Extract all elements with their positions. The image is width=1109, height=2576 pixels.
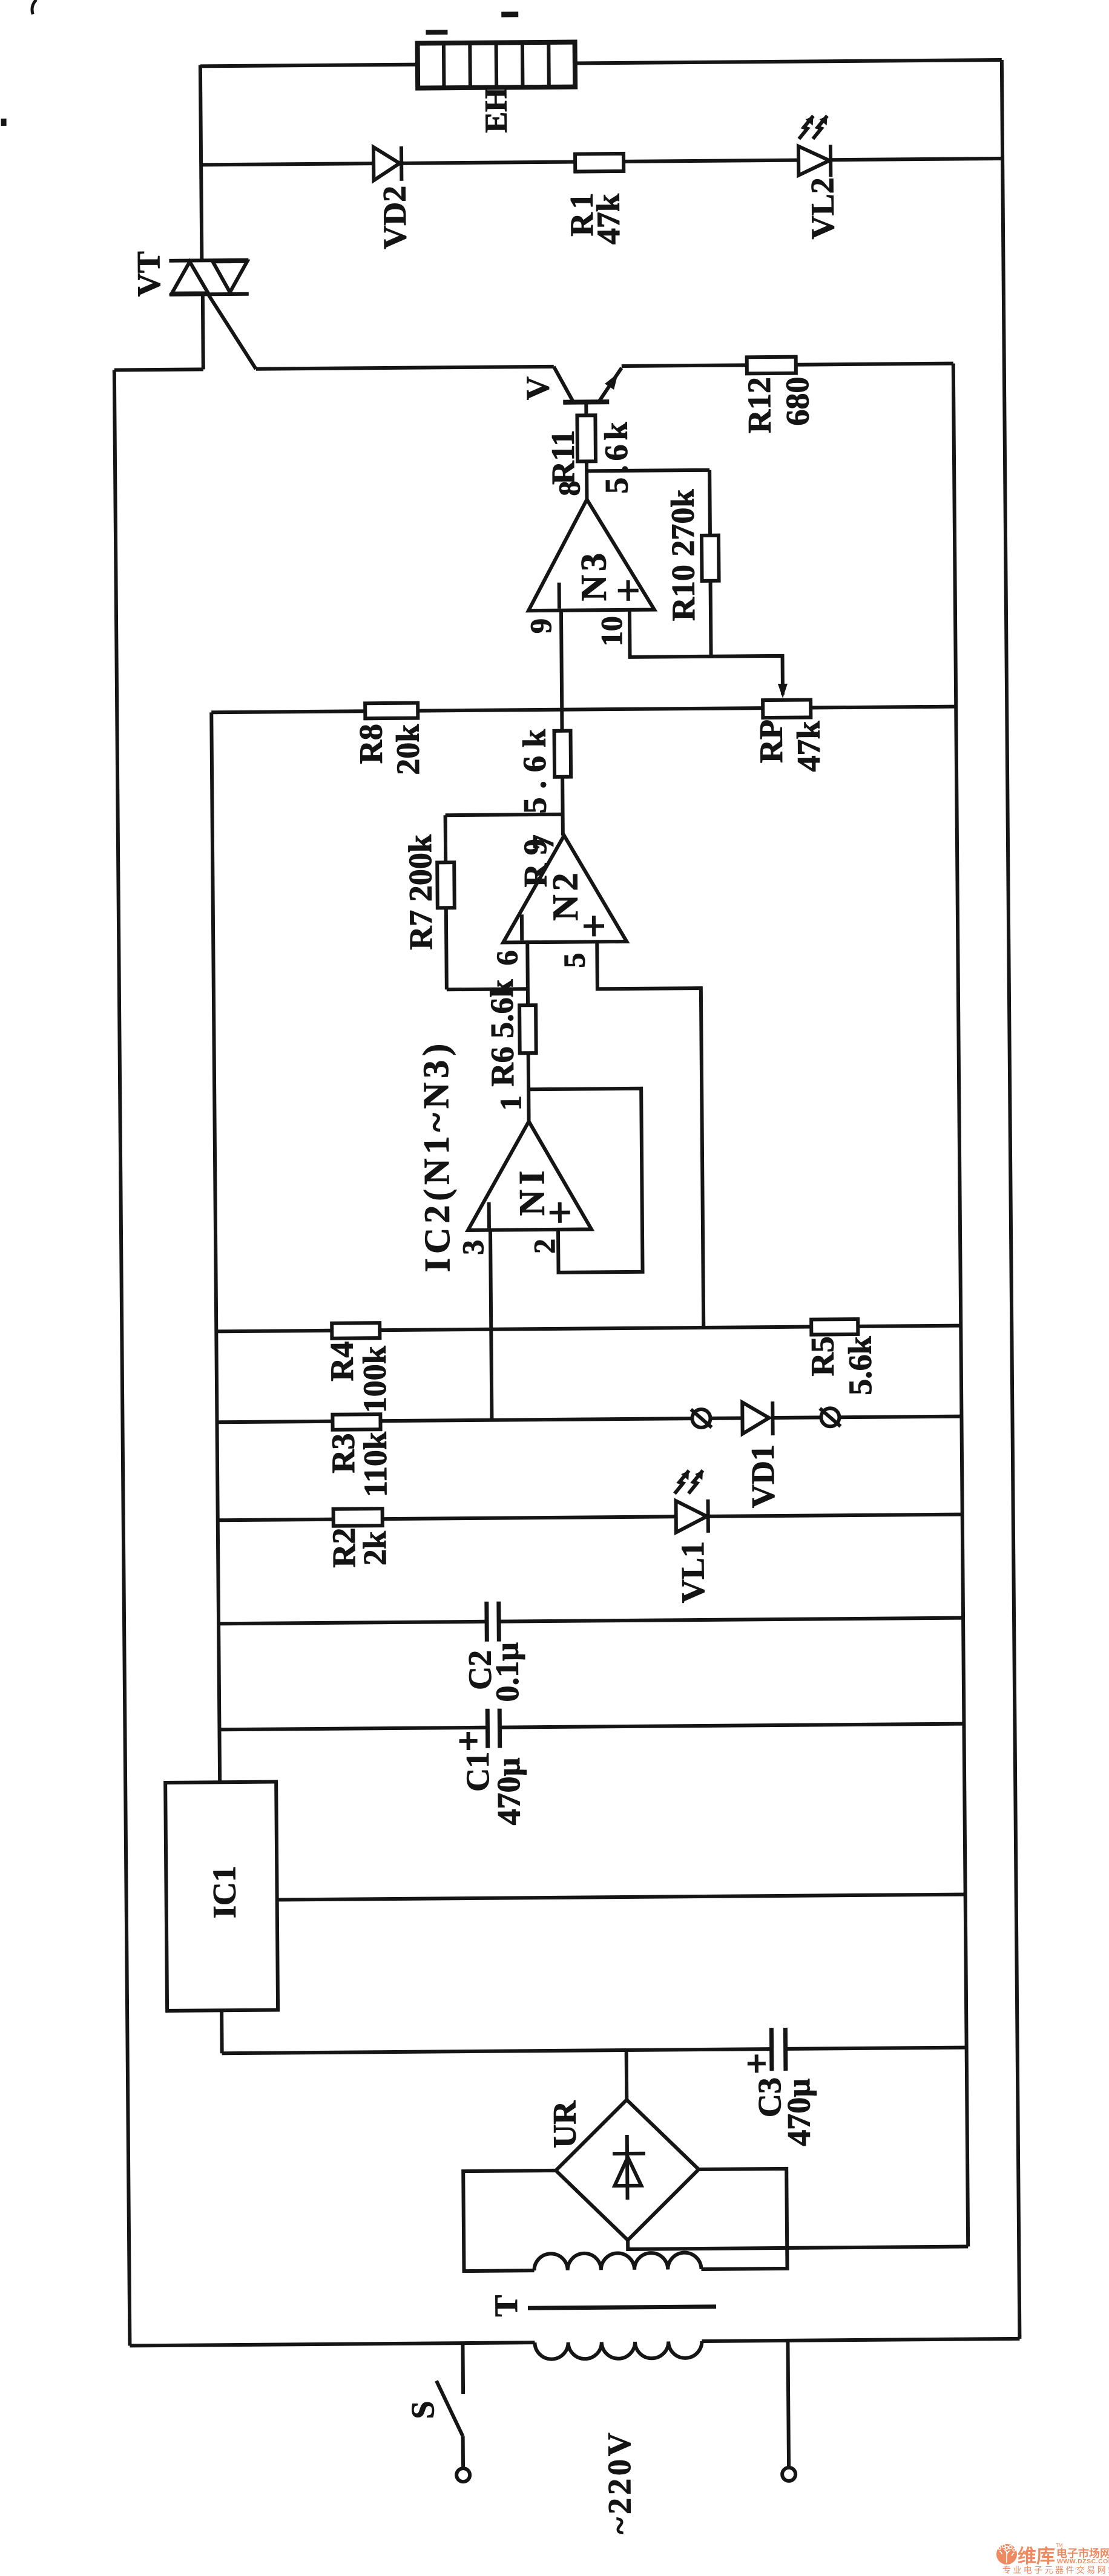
svg-text:N2: N2 — [545, 869, 585, 921]
svg-text:VL2: VL2 — [804, 177, 841, 239]
svg-text:47k: 47k — [590, 194, 627, 245]
svg-text:VD1: VD1 — [745, 1444, 782, 1508]
svg-text:VT: VT — [130, 251, 167, 297]
svg-text:6: 6 — [490, 950, 524, 965]
svg-text:R8: R8 — [352, 724, 389, 764]
svg-text:R5: R5 — [804, 1336, 841, 1376]
svg-text:110k: 110k — [357, 1432, 394, 1498]
svg-text:V: V — [519, 376, 556, 400]
svg-text:R3: R3 — [325, 1433, 362, 1473]
svg-text:1: 1 — [493, 1095, 527, 1110]
svg-text:VD2: VD2 — [376, 186, 413, 249]
svg-text:10: 10 — [594, 616, 628, 646]
svg-text:RP: RP — [752, 719, 789, 763]
svg-text:NI: NI — [512, 1165, 552, 1216]
svg-text:WWW.DZSC.COM: WWW.DZSC.COM — [1057, 2558, 1109, 2565]
svg-text:R10 270k: R10 270k — [664, 489, 702, 621]
svg-text:IC2(N1~N3): IC2(N1~N3) — [416, 1040, 458, 1273]
svg-text:R7 200k: R7 200k — [402, 834, 439, 950]
svg-text:470µ: 470µ — [490, 1757, 527, 1826]
svg-text:7: 7 — [526, 834, 560, 850]
svg-text:R6 5.6k: R6 5.6k — [484, 979, 521, 1086]
svg-text:专业电子元器件交易网站: 专业电子元器件交易网站 — [1002, 2565, 1109, 2575]
svg-text:R4: R4 — [323, 1341, 360, 1381]
svg-text:20k: 20k — [389, 724, 426, 775]
svg-text:2k: 2k — [357, 1531, 393, 1566]
svg-text:47k: 47k — [790, 721, 827, 772]
svg-text:8: 8 — [552, 480, 586, 496]
svg-text:2: 2 — [527, 1239, 561, 1254]
svg-text:5.6k: 5.6k — [841, 1336, 878, 1395]
svg-text:470µ: 470µ — [780, 2078, 817, 2146]
svg-text:~220V: ~220V — [601, 2430, 638, 2535]
svg-text:VL1: VL1 — [674, 1541, 711, 1603]
svg-text:680: 680 — [779, 376, 816, 425]
svg-text:R11: R11 — [545, 430, 582, 484]
svg-text:T: T — [488, 2295, 524, 2317]
svg-text:5: 5 — [557, 952, 591, 968]
svg-text:9: 9 — [524, 618, 558, 634]
svg-text:EH: EH — [479, 87, 514, 133]
svg-text:5.6k: 5.6k — [597, 418, 634, 494]
svg-text:R12: R12 — [741, 377, 778, 433]
svg-text:N3: N3 — [573, 549, 614, 601]
svg-text:100k: 100k — [356, 1346, 393, 1414]
svg-text:IC1: IC1 — [206, 1866, 243, 1918]
svg-text:0.1µ: 0.1µ — [489, 1642, 525, 1702]
svg-text:维库: 维库 — [1018, 2546, 1055, 2567]
svg-text:UR: UR — [546, 2100, 583, 2148]
svg-text:3: 3 — [456, 1240, 490, 1255]
svg-text:S: S — [404, 2401, 441, 2419]
